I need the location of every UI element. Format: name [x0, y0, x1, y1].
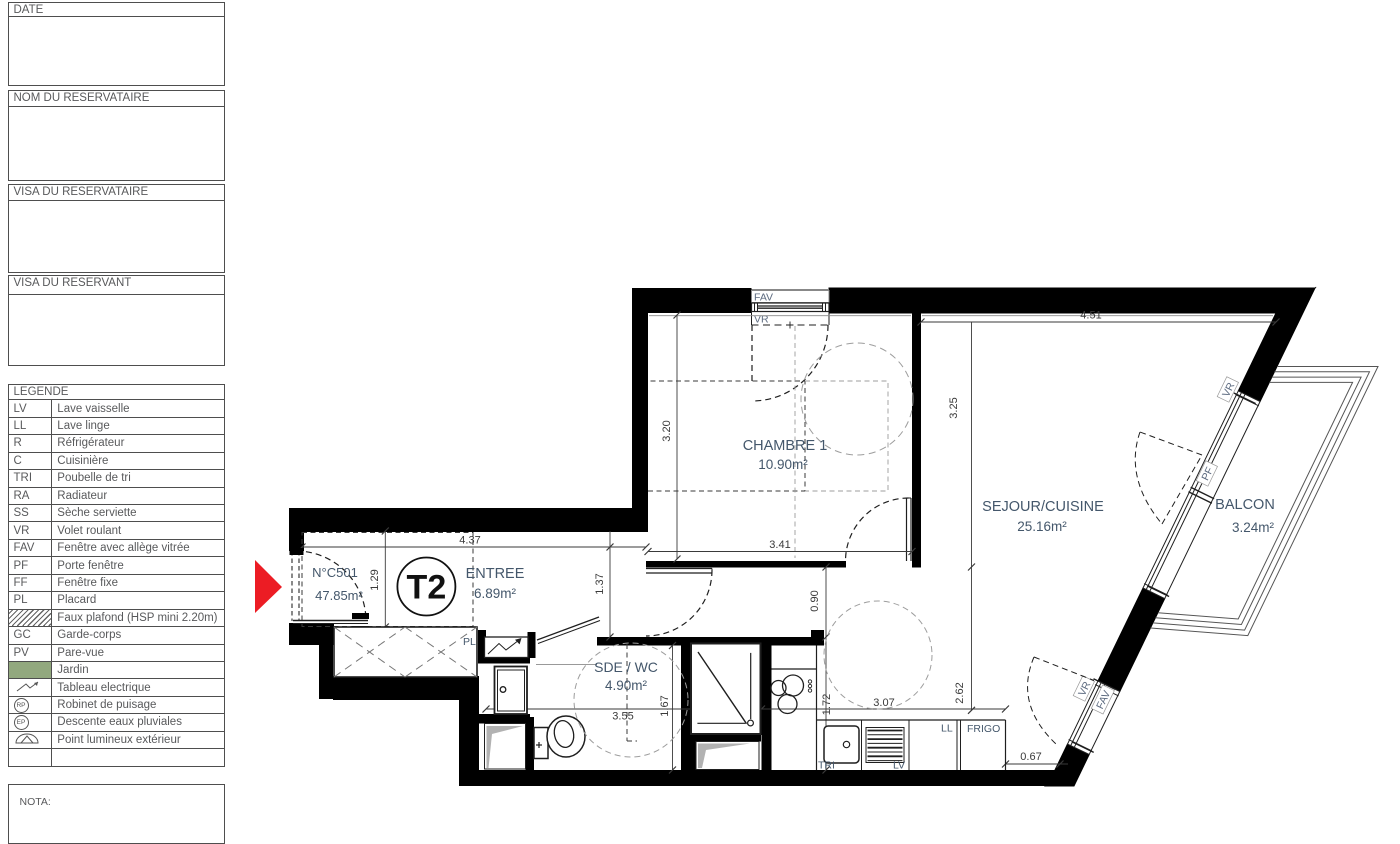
svg-text:3.41: 3.41 [769, 539, 790, 551]
svg-text:0.90: 0.90 [809, 590, 821, 611]
svg-text:25.16m²: 25.16m² [1017, 519, 1067, 534]
svg-text:4.90m²: 4.90m² [605, 678, 648, 693]
svg-text:6.89m²: 6.89m² [474, 586, 517, 601]
svg-text:47.85m²: 47.85m² [315, 588, 363, 603]
svg-text:0.67: 0.67 [1020, 751, 1041, 763]
svg-text:10.90m²: 10.90m² [758, 457, 808, 472]
svg-text:SEJOUR/CUISINE: SEJOUR/CUISINE [982, 499, 1104, 515]
svg-text:4.51: 4.51 [1080, 310, 1101, 322]
svg-text:PL: PL [463, 636, 476, 648]
svg-text:1.37: 1.37 [594, 573, 606, 594]
svg-text:TRI: TRI [818, 760, 835, 772]
svg-text:N°C501: N°C501 [312, 565, 358, 580]
svg-text:1.72: 1.72 [821, 694, 833, 715]
svg-text:1.29: 1.29 [369, 569, 381, 590]
svg-text:3.55: 3.55 [612, 711, 633, 723]
svg-text:LL: LL [941, 723, 953, 735]
svg-text:1.67: 1.67 [659, 695, 671, 716]
svg-text:3.20: 3.20 [661, 420, 673, 441]
svg-text:3.24m²: 3.24m² [1232, 520, 1275, 535]
svg-text:CHAMBRE 1: CHAMBRE 1 [743, 438, 828, 454]
svg-text:3.25: 3.25 [948, 397, 960, 418]
svg-text:2.62: 2.62 [954, 682, 966, 703]
svg-text:FAV: FAV [754, 292, 773, 304]
svg-text:BALCON: BALCON [1215, 497, 1275, 513]
svg-text:4.37: 4.37 [459, 535, 480, 547]
svg-text:ENTREE: ENTREE [466, 566, 525, 582]
svg-text:T2: T2 [407, 569, 447, 607]
svg-text:FRIGO: FRIGO [967, 723, 1000, 735]
svg-text:SDE / WC: SDE / WC [594, 659, 658, 675]
svg-text:LV: LV [893, 760, 905, 772]
